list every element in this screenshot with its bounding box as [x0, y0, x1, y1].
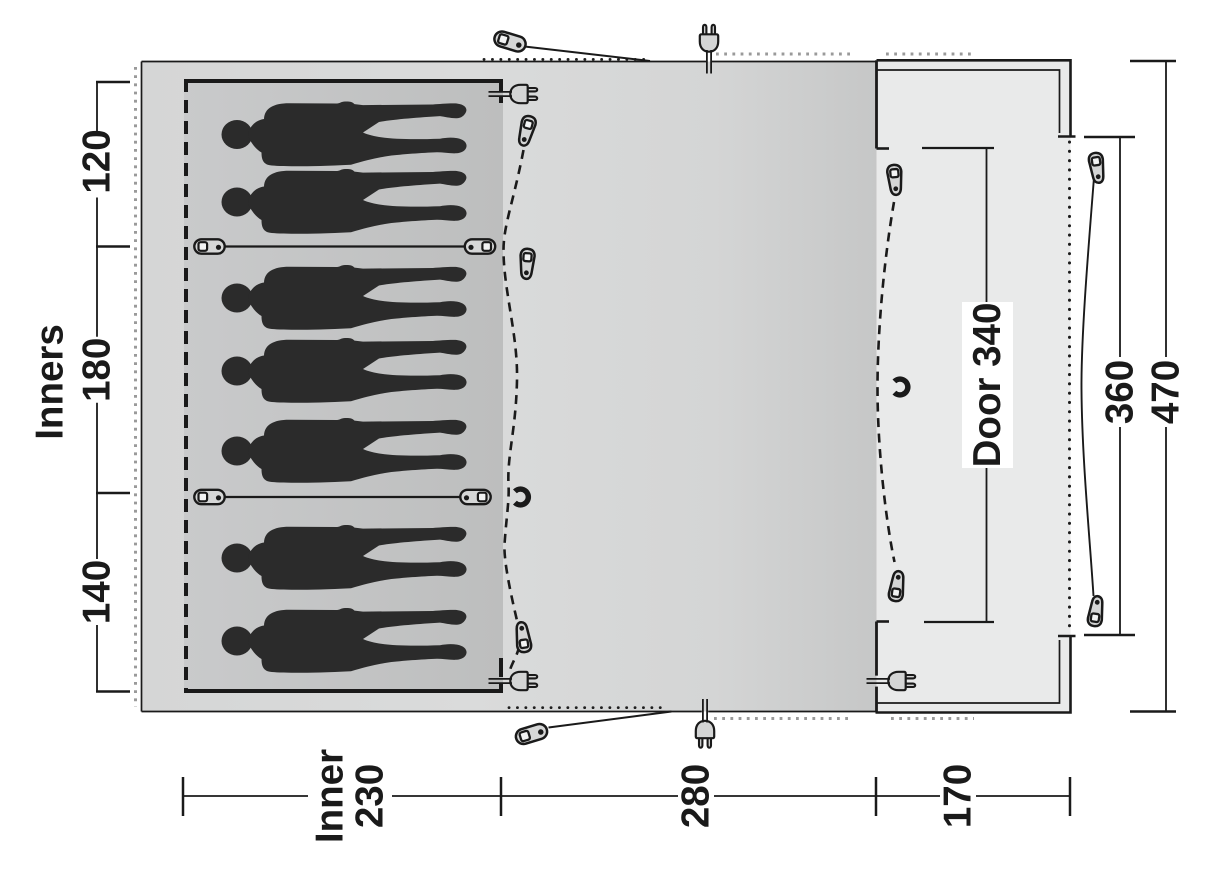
svg-text:360: 360 [1099, 360, 1142, 424]
svg-text:170: 170 [937, 764, 980, 828]
svg-text:230: 230 [349, 764, 392, 828]
svg-text:Door 340: Door 340 [966, 303, 1009, 468]
svg-text:180: 180 [76, 338, 119, 402]
svg-text:470: 470 [1145, 360, 1188, 424]
svg-text:280: 280 [675, 764, 718, 828]
svg-text:Inners: Inners [29, 324, 72, 440]
svg-text:Inner: Inner [309, 749, 352, 843]
svg-text:140: 140 [76, 560, 119, 624]
svg-text:120: 120 [76, 129, 119, 193]
